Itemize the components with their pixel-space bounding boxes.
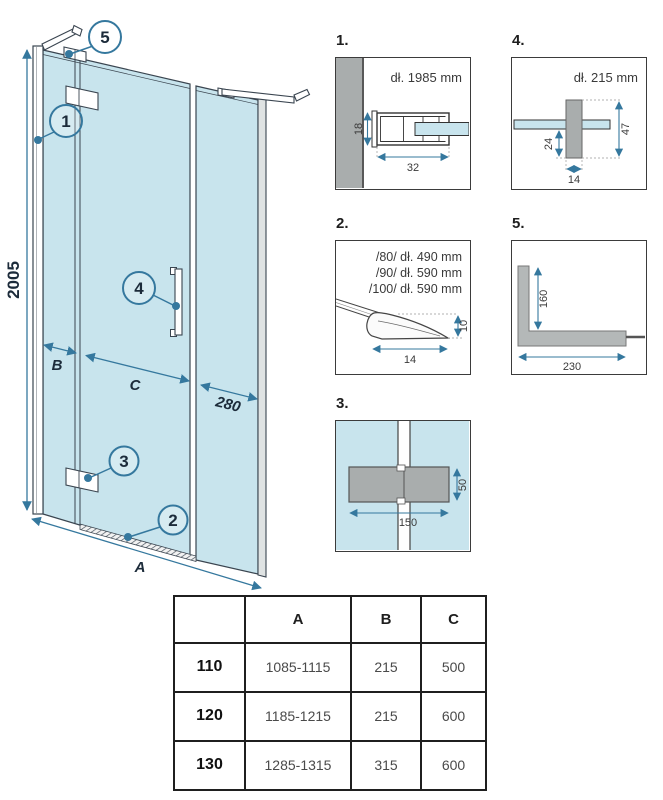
detail-1-drawing: dł. 1985 mm 18 32 [336,58,469,188]
detail-5-box: 160 230 [511,240,647,375]
cell-b: 315 [351,741,421,790]
detail-4-dim-24: 24 [543,131,566,158]
corner-cell [174,596,245,643]
detail-1-title: dł. 1985 mm [390,70,462,85]
svg-text:14: 14 [404,354,416,366]
variant-90: /90/ dł. 590 mm [376,266,462,280]
cell-a: 1085-1115 [245,643,351,692]
detail-3-drawing: 50 150 [336,421,469,550]
top-left-support-arm [42,26,82,51]
size-table: A B C 110 1085-1115 215 500 120 1185-121… [173,595,487,791]
row-size: 110 [174,643,245,692]
detail-4-title: dł. 215 mm [574,70,638,85]
detail-2-index: 2. [336,215,349,232]
callout-3-number: 3 [119,452,128,471]
detail-4-index: 4. [512,32,525,49]
table-row: 110 1085-1115 215 500 [174,643,486,692]
svg-text:50: 50 [457,479,469,491]
row-size: 120 [174,692,245,741]
wall-profile [33,46,43,514]
detail-5-index: 5. [512,215,525,232]
callout-4-number: 4 [134,279,144,298]
cell-c: 500 [421,643,486,692]
glass-section [415,123,469,136]
detail-5-dim-230: 230 [519,357,625,373]
svg-text:32: 32 [407,162,419,174]
cell-a: 1285-1315 [245,741,351,790]
cell-c: 600 [421,692,486,741]
svg-text:14: 14 [568,174,580,186]
row-size: 130 [174,741,245,790]
variant-80: /80/ dł. 490 mm [376,250,462,264]
detail-4-dim-14: 14 [566,160,582,186]
svg-text:150: 150 [399,517,417,529]
cell-b: 215 [351,643,421,692]
col-header-c: C [421,596,486,643]
technical-drawing-page: 2005 B C 280 A 5 1 [0,0,663,800]
detail-1-box: dł. 1985 mm 18 32 [335,57,471,190]
col-header-b: B [351,596,421,643]
callout-1-number: 1 [61,112,70,131]
right-end-profile [258,97,266,577]
detail-4-dim-47: 47 [619,102,632,156]
seal-profile-section [336,299,448,339]
hinge-plate-section [349,465,449,504]
callout-2-number: 2 [168,511,177,530]
dim-a-label: A [134,559,146,576]
dim-b-label: B [52,357,63,374]
detail-4-box: dł. 215 mm 47 24 14 [511,57,647,190]
cell-a: 1185-1215 [245,692,351,741]
svg-text:47: 47 [620,123,632,135]
dim-2005-label: 2005 [4,261,23,299]
detail-4-drawing: dł. 215 mm 47 24 14 [512,58,645,188]
svg-text:230: 230 [563,361,581,373]
glass-section [514,120,610,129]
support-arm-section [518,266,626,346]
svg-text:24: 24 [543,138,555,150]
detail-5-drawing: 160 230 [512,241,645,373]
dim-c-label: C [130,377,142,394]
detail-2-drawing: /80/ dł. 490 mm /90/ dł. 590 mm /100/ dł… [336,241,469,373]
glass-fixed-panel [196,86,258,574]
svg-text:18: 18 [353,123,365,135]
detail-1-dim-32: 32 [377,147,449,174]
callout-5-number: 5 [100,28,109,47]
dimension-2005: 2005 [4,50,27,510]
svg-text:10: 10 [458,320,469,332]
variant-100: /100/ dł. 590 mm [369,282,462,296]
detail-5-dim-160: 160 [538,268,550,329]
table-row: 130 1285-1315 315 600 [174,741,486,790]
detail-2-box: /80/ dł. 490 mm /90/ dł. 590 mm /100/ dł… [335,240,471,375]
cell-b: 215 [351,692,421,741]
detail-3-box: 50 150 [335,420,471,552]
detail-2-dim-14: 14 [373,349,447,366]
cell-c: 600 [421,741,486,790]
svg-text:160: 160 [538,290,550,308]
col-header-a: A [245,596,351,643]
table-header-row: A B C [174,596,486,643]
detail-3-index: 3. [336,395,349,412]
stabilizer-bar-section [566,100,582,158]
detail-1-index: 1. [336,32,349,49]
table-row: 120 1185-1215 215 600 [174,692,486,741]
main-shower-door-drawing: 2005 B C 280 A 5 1 [0,0,330,640]
